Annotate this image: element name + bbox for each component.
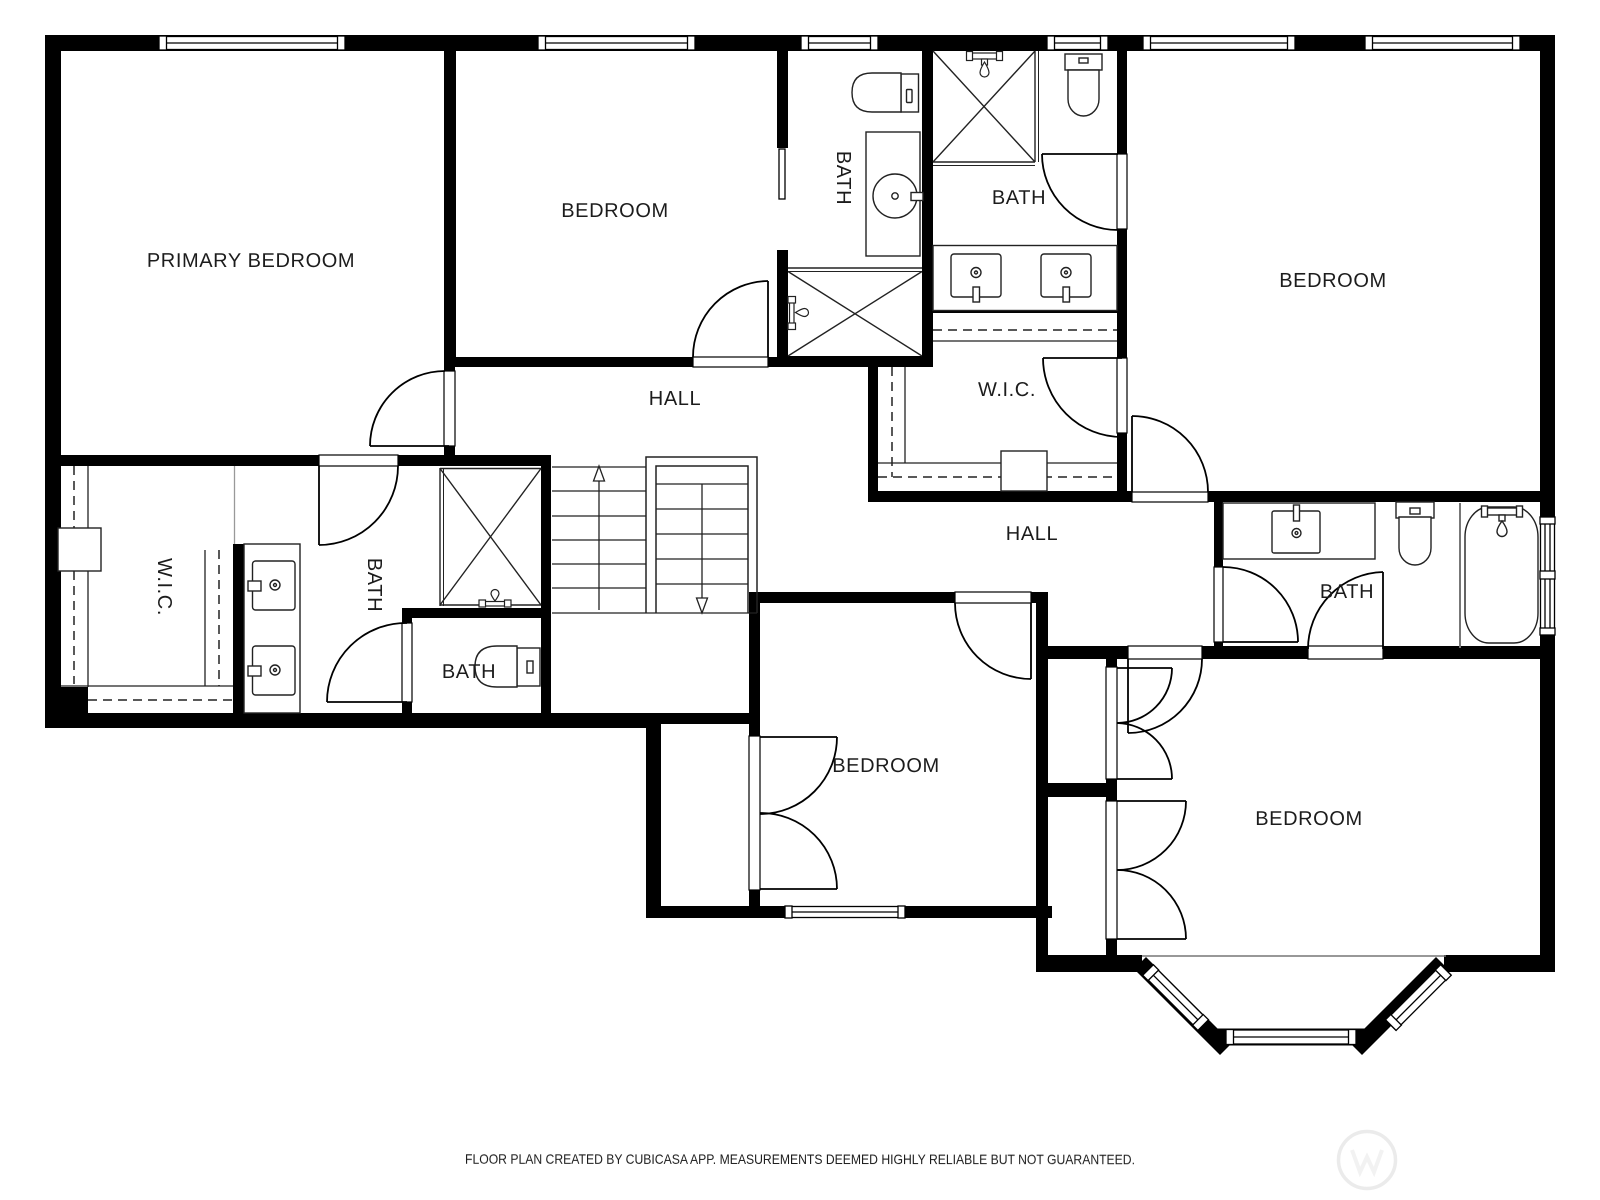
svg-text:BEDROOM: BEDROOM [561,200,669,222]
svg-text:HALL: HALL [1006,523,1058,545]
svg-text:BATH: BATH [992,187,1046,209]
svg-text:PRIMARY BEDROOM: PRIMARY BEDROOM [147,250,355,272]
svg-text:BATH: BATH [832,151,854,205]
svg-text:HALL: HALL [649,388,701,410]
svg-text:BEDROOM: BEDROOM [832,755,940,777]
svg-text:BATH: BATH [442,661,496,683]
svg-text:BATH: BATH [1320,581,1374,603]
svg-text:FLOOR PLAN CREATED BY CUBICASA: FLOOR PLAN CREATED BY CUBICASA APP. MEAS… [465,1151,1135,1167]
svg-text:BATH: BATH [363,558,385,612]
svg-text:BEDROOM: BEDROOM [1279,270,1387,292]
svg-text:W.I.C.: W.I.C. [153,558,175,616]
svg-text:BEDROOM: BEDROOM [1255,808,1363,830]
svg-text:W.I.C.: W.I.C. [978,379,1036,401]
